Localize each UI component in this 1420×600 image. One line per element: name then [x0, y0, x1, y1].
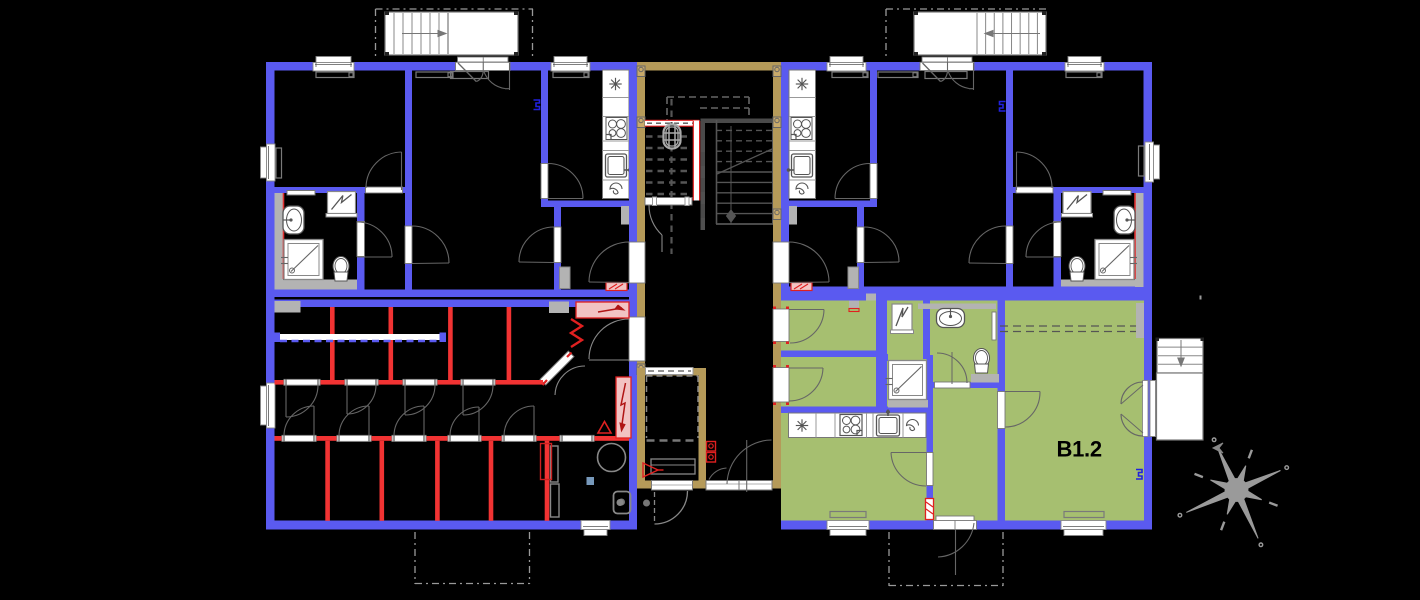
svg-text:B1.2: B1.2 [1057, 437, 1102, 462]
